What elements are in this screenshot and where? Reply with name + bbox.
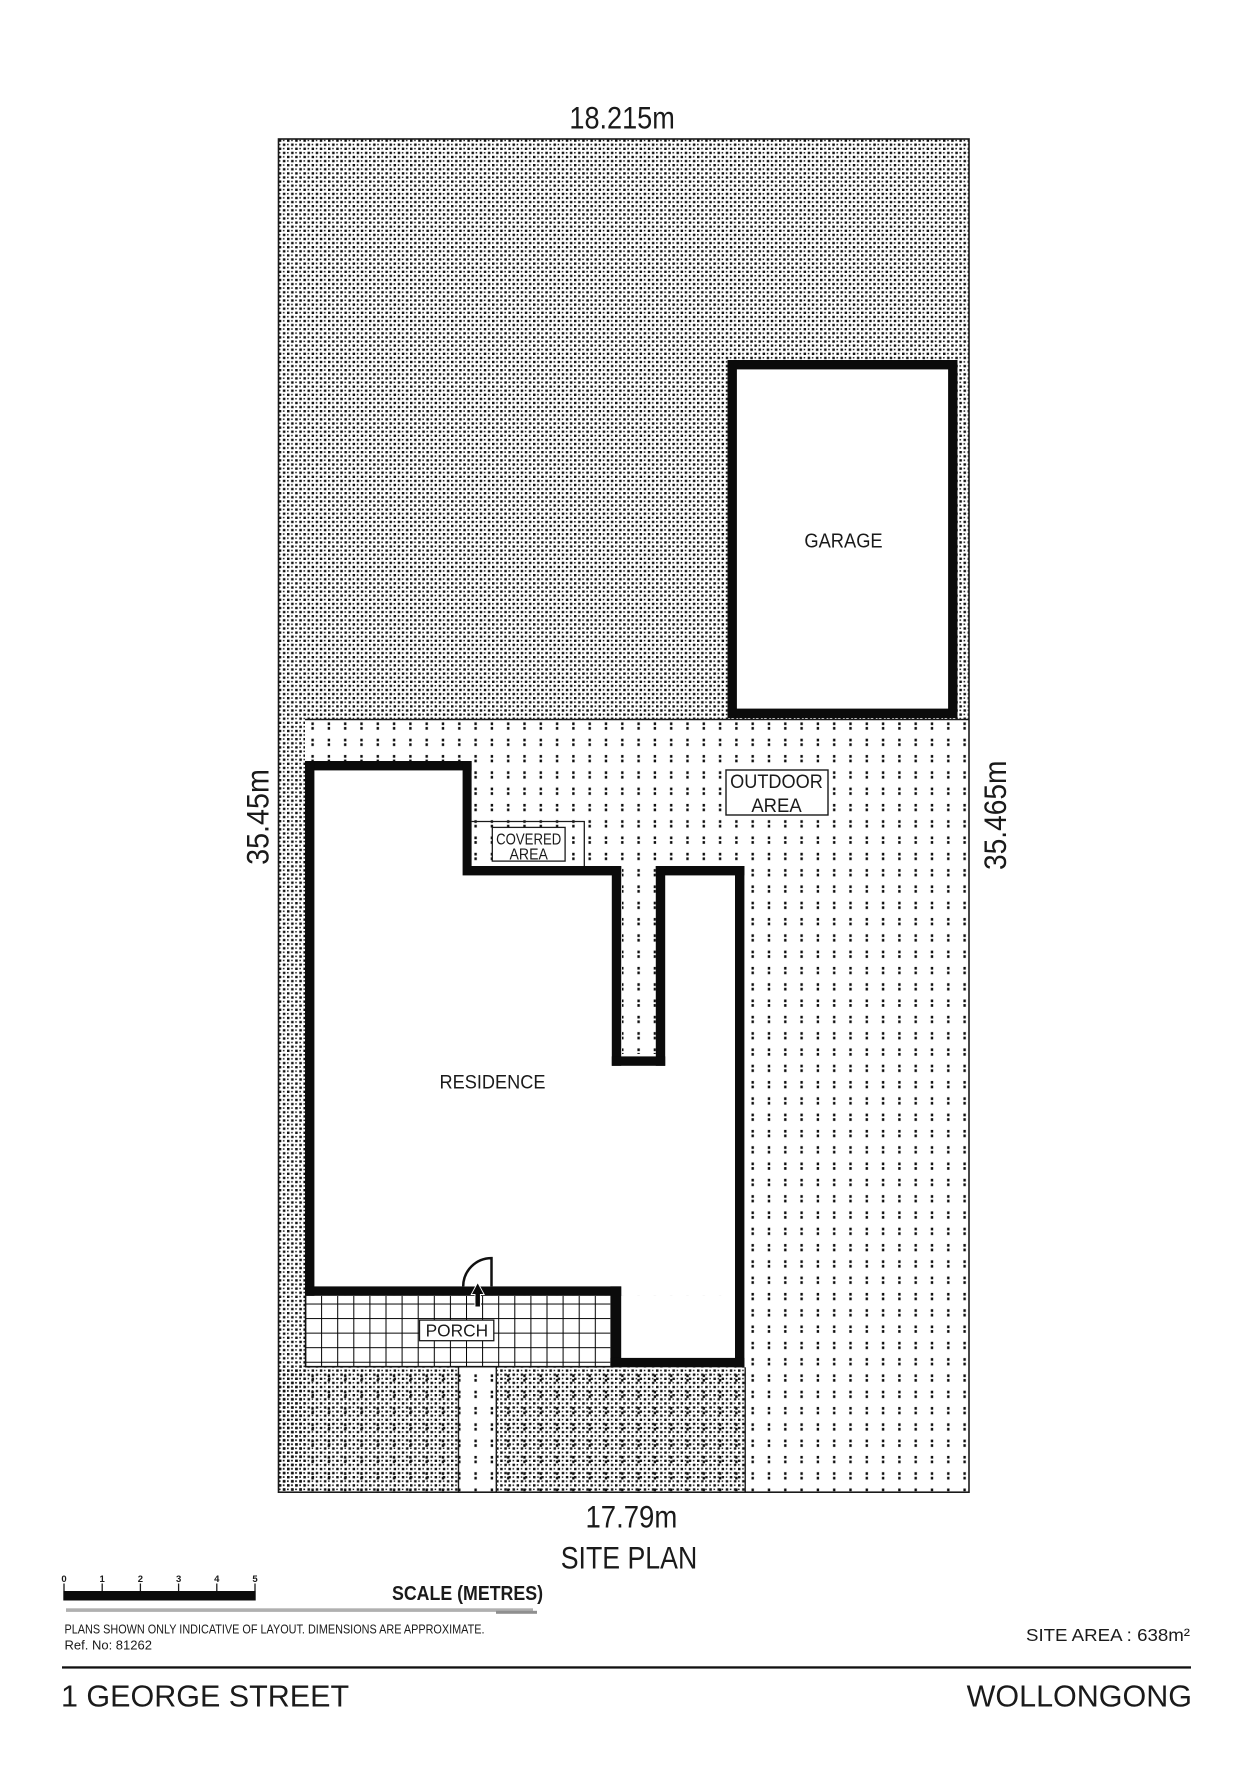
svg-text:AREA: AREA	[510, 846, 549, 863]
svg-text:Ref. No: 81262: Ref. No: 81262	[65, 1638, 152, 1653]
svg-text:18.215m: 18.215m	[569, 99, 674, 135]
svg-text:RESIDENCE: RESIDENCE	[440, 1071, 546, 1093]
svg-text:AREA: AREA	[751, 796, 802, 817]
svg-text:GARAGE: GARAGE	[804, 530, 882, 553]
svg-text:1: 1	[100, 1574, 106, 1585]
svg-text:2: 2	[138, 1574, 143, 1585]
svg-text:35.465m: 35.465m	[977, 761, 1013, 870]
svg-text:PORCH: PORCH	[426, 1320, 489, 1340]
svg-text:SITE PLAN: SITE PLAN	[561, 1539, 698, 1575]
svg-text:1 GEORGE STREET: 1 GEORGE STREET	[61, 1680, 349, 1714]
svg-text:5: 5	[252, 1574, 258, 1585]
svg-text:WOLLONGONG: WOLLONGONG	[967, 1680, 1192, 1714]
svg-text:17.79m: 17.79m	[586, 1499, 678, 1535]
svg-text:PLANS SHOWN ONLY INDICATIVE OF: PLANS SHOWN ONLY INDICATIVE OF LAYOUT. D…	[65, 1623, 485, 1637]
svg-text:3: 3	[176, 1574, 181, 1585]
svg-text:SCALE (METRES): SCALE (METRES)	[392, 1582, 543, 1605]
svg-text:4: 4	[214, 1574, 220, 1585]
svg-text:OUTDOOR: OUTDOOR	[730, 772, 823, 793]
svg-text:0: 0	[61, 1574, 66, 1585]
svg-text:SITE AREA : 638m²: SITE AREA : 638m²	[1026, 1625, 1190, 1645]
svg-text:35.45m: 35.45m	[240, 769, 276, 865]
